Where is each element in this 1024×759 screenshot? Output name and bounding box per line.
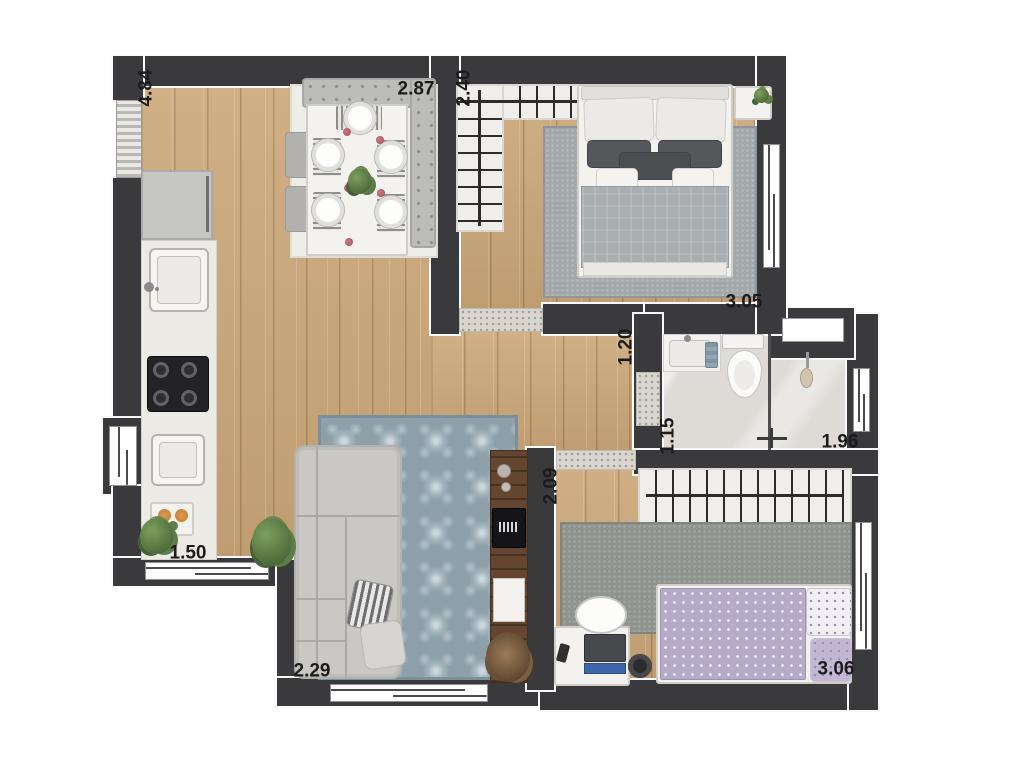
dim-label-hall-width: 1.20 — [617, 329, 636, 366]
kitchen-bottom-window — [145, 562, 269, 580]
plate — [374, 195, 408, 229]
orange-plate — [175, 509, 188, 522]
dim-label-bathroom-width: 1.15 — [659, 418, 678, 455]
flower-decor — [343, 128, 351, 136]
bedroom2-window — [855, 522, 872, 650]
sofa-seam — [345, 517, 347, 677]
candle-icon — [497, 464, 511, 478]
kitchen-side-window — [109, 426, 137, 486]
living-bottom-window — [330, 684, 488, 702]
living-plant — [252, 518, 292, 566]
bathroom-door-threshold — [636, 372, 660, 426]
dim-label-bedroom1-width: 3.05 — [726, 293, 763, 312]
fridge-handle — [206, 176, 209, 232]
burner-icon — [181, 390, 197, 406]
books — [493, 578, 525, 622]
toilet-bowl-inner — [734, 360, 755, 390]
sofa-seam — [316, 447, 318, 677]
candle-icon — [501, 482, 511, 492]
closet-rail-line — [460, 100, 578, 103]
dim-label-living-width: 2.29 — [294, 662, 331, 681]
desk-chair — [575, 596, 627, 634]
burner-icon — [181, 362, 197, 378]
flower-decor — [376, 136, 384, 144]
bath-window — [853, 368, 870, 432]
plate — [311, 193, 345, 227]
shower-hose — [806, 352, 809, 368]
burner-icon — [153, 362, 169, 378]
closet-rail-line — [478, 90, 481, 226]
bed-blanket — [581, 186, 729, 268]
bedroom1-door-threshold — [459, 308, 543, 332]
wall-left-mid — [113, 178, 143, 430]
shower-top-window — [782, 318, 844, 342]
burner-icon — [153, 390, 169, 406]
bedroom1-window — [763, 144, 780, 268]
faucet-icon — [684, 335, 691, 342]
dim-label-shower-width: 1.96 — [822, 433, 859, 452]
dim-label-closet-depth: 2.40 — [455, 70, 474, 107]
kitchen-sink-basin — [157, 256, 201, 304]
wall-left-lower — [113, 486, 143, 564]
flower-decor — [345, 238, 353, 246]
toilet-tank — [722, 334, 764, 349]
sofa-seam — [296, 640, 347, 642]
bedroom2-door-threshold — [556, 450, 636, 470]
dim-label-bedroom2-width: 3.06 — [818, 660, 855, 679]
tv-logo — [499, 522, 519, 532]
table-centerpiece-plant — [348, 168, 372, 194]
sofa-pillow — [359, 619, 407, 670]
headphones-icon — [628, 654, 652, 678]
wardrobe-rail-line — [646, 494, 844, 497]
laptop — [584, 634, 626, 662]
shower-head-icon — [800, 368, 813, 388]
floor-plan: 4.84 2.87 2.40 3.05 1.20 1.15 1.96 2.09 … — [0, 0, 1024, 759]
entry-door — [116, 100, 142, 178]
flower-decor — [377, 189, 385, 197]
nightstand-plant — [754, 88, 769, 103]
sofa-seam — [296, 598, 347, 600]
dim-label-entry-wall: 4.84 — [137, 70, 156, 107]
faucet-icon — [144, 282, 154, 292]
dim-label-dining-width: 2.87 — [398, 80, 435, 99]
laptop-keyboard — [584, 663, 626, 674]
bath-towel — [705, 342, 718, 368]
bed-foot-sheet — [583, 262, 727, 276]
plate — [374, 140, 408, 174]
fridge — [141, 170, 213, 240]
plate — [311, 138, 345, 172]
pillow — [655, 97, 726, 143]
dim-label-kitchen-width: 1.50 — [170, 544, 207, 563]
dim-label-bedroom2-entry: 2.09 — [542, 468, 561, 505]
bed-single-blanket — [660, 588, 806, 680]
shower-door-handle — [770, 428, 773, 448]
pillow — [583, 97, 654, 143]
sofa-seam — [296, 515, 400, 517]
dried-plant — [486, 632, 530, 682]
kitchen-sink-2-basin — [159, 442, 197, 478]
bed2-pillow — [806, 588, 852, 636]
dining-bench-right — [410, 78, 436, 248]
